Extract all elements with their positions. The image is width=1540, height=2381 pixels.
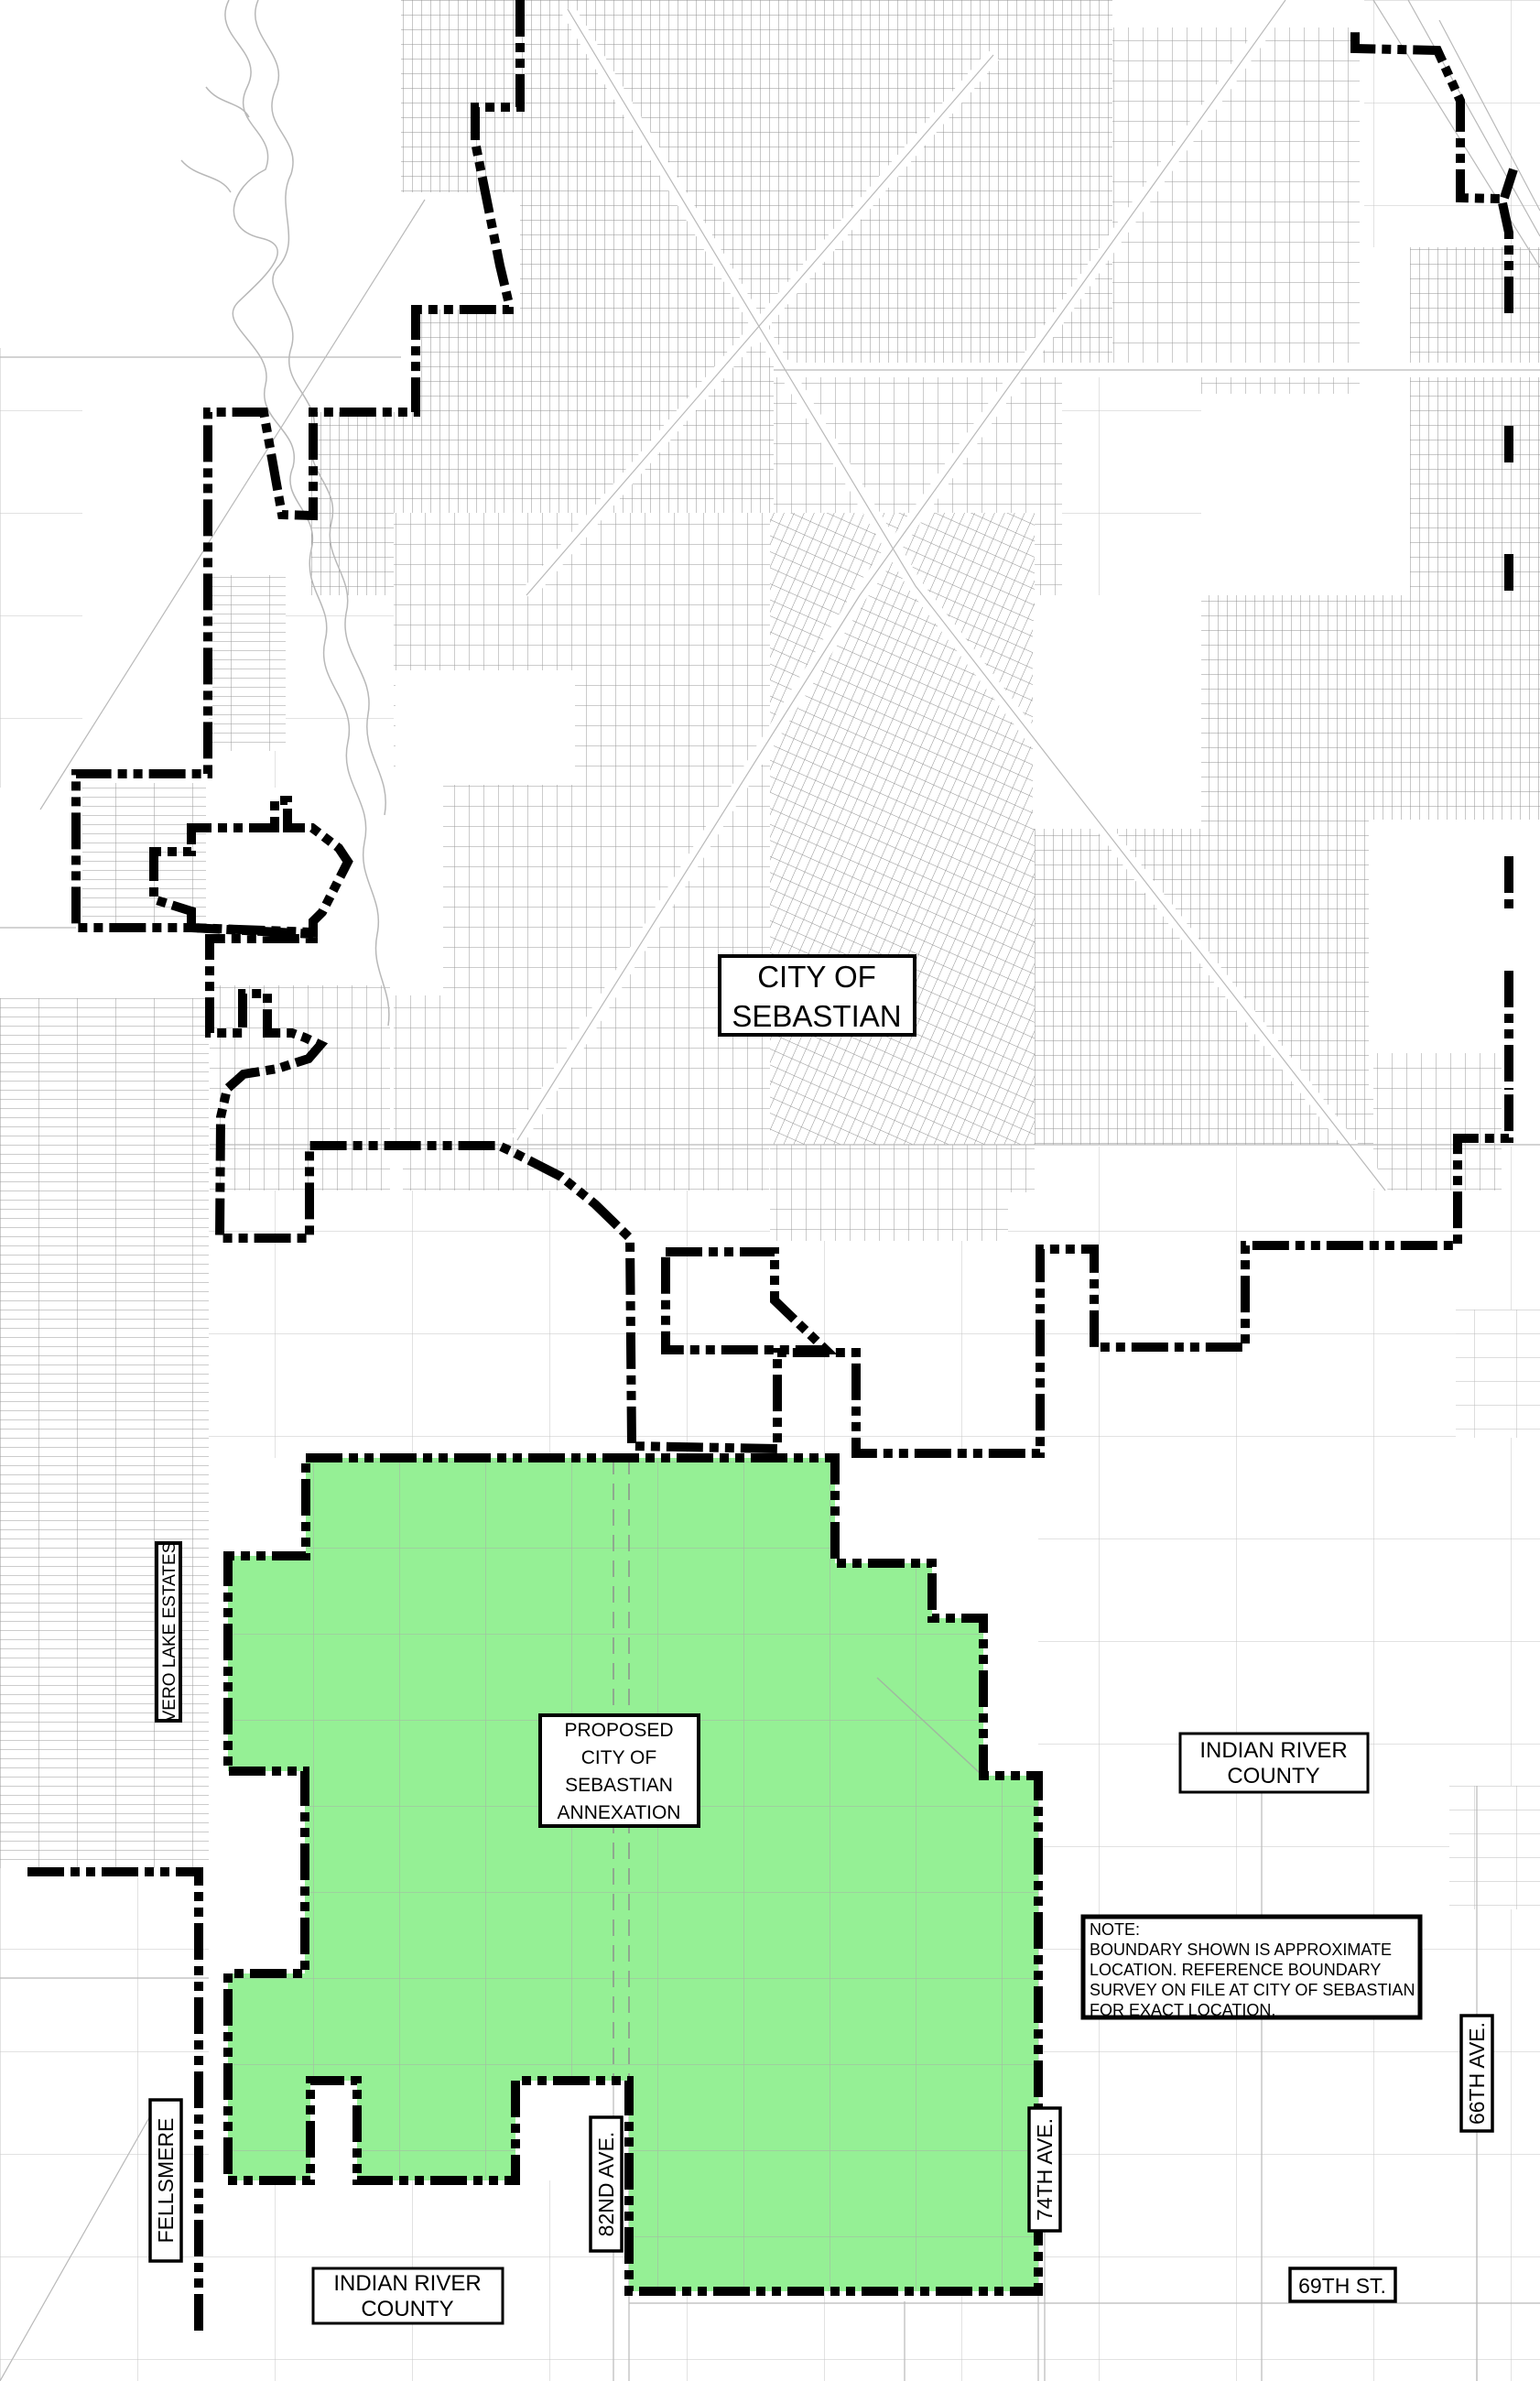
svg-text:BOUNDARY SHOWN IS APPROXIMATE: BOUNDARY SHOWN IS APPROXIMATE	[1090, 1941, 1392, 1959]
svg-text:66TH AVE.: 66TH AVE.	[1465, 2022, 1489, 2125]
svg-text:82ND AVE.: 82ND AVE.	[594, 2132, 618, 2237]
svg-text:74TH AVE.: 74TH AVE.	[1033, 2118, 1057, 2221]
svg-text:NOTE:: NOTE:	[1090, 1920, 1140, 1939]
svg-text:FELLSMERE: FELLSMERE	[154, 2118, 178, 2244]
svg-text:COUNTY: COUNTY	[1227, 1764, 1319, 1788]
svg-text:SEBASTIAN: SEBASTIAN	[732, 999, 901, 1033]
svg-text:CITY OF: CITY OF	[757, 960, 876, 994]
svg-text:VERO LAKE ESTATES: VERO LAKE ESTATES	[160, 1542, 179, 1723]
svg-text:INDIAN RIVER: INDIAN RIVER	[333, 2271, 481, 2296]
svg-text:LOCATION. REFERENCE BOUNDARY: LOCATION. REFERENCE BOUNDARY	[1090, 1961, 1381, 1979]
svg-text:SEBASTIAN: SEBASTIAN	[565, 1775, 673, 1796]
svg-text:SURVEY ON FILE AT CITY OF SEBA: SURVEY ON FILE AT CITY OF SEBASTIAN	[1090, 1981, 1415, 1999]
svg-text:69TH ST.: 69TH ST.	[1298, 2274, 1386, 2298]
svg-text:PROPOSED: PROPOSED	[564, 1720, 673, 1741]
svg-text:ANNEXATION: ANNEXATION	[558, 1802, 681, 1823]
svg-text:INDIAN RIVER: INDIAN RIVER	[1199, 1738, 1347, 1763]
svg-text:CITY OF: CITY OF	[581, 1747, 656, 1768]
svg-text:FOR EXACT LOCATION.: FOR EXACT LOCATION.	[1090, 2001, 1275, 2019]
svg-text:COUNTY: COUNTY	[361, 2297, 453, 2321]
